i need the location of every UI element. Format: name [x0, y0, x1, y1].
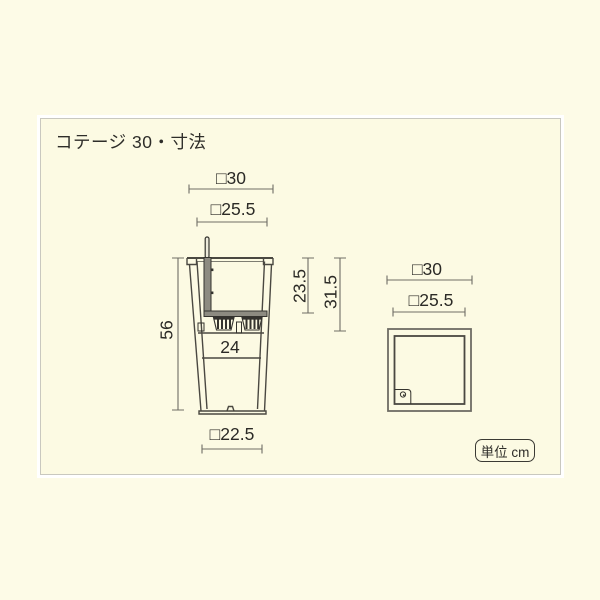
label-mid-inner-width: 24	[220, 337, 240, 357]
center-drain-plug	[237, 322, 242, 333]
label-topview-outer-width: □30	[412, 259, 442, 279]
topview-drain-hole	[400, 392, 405, 397]
planter-outline	[187, 258, 273, 414]
top-view: □30 □25.5	[387, 259, 472, 411]
label-liner-depth: 31.5	[321, 275, 341, 309]
topview-outer-square	[388, 329, 471, 411]
liner-bottom-bar	[204, 311, 267, 317]
inner-liner	[198, 237, 267, 333]
label-bottom-width: □22.5	[210, 424, 255, 444]
gauge-marker-upper	[211, 269, 214, 272]
gauge-marker-lower	[211, 292, 214, 295]
topview-drain-hole-dot	[403, 394, 405, 396]
water-gauge-stick	[205, 237, 209, 258]
drainage-grate-left	[214, 318, 235, 331]
label-top-inner-width: □25.5	[211, 199, 256, 219]
pot-base	[199, 411, 266, 414]
dimension-drawing: □30 □25.5 56 23.5 31.5 24 □22.5 □30 □25.…	[0, 0, 600, 600]
side-view: □30 □25.5 56 23.5 31.5 24 □22.5	[157, 168, 347, 454]
water-gauge-tube	[204, 258, 211, 313]
dim-line-bottom	[202, 445, 262, 454]
label-total-height: 56	[157, 320, 177, 339]
drainage-grate-right	[242, 318, 262, 331]
label-topview-inner-width: □25.5	[409, 290, 454, 310]
label-inner-depth: 23.5	[290, 269, 310, 303]
page-background: コテージ 30・寸法 単位 cm	[0, 0, 600, 600]
label-top-outer-width: □30	[216, 168, 246, 188]
